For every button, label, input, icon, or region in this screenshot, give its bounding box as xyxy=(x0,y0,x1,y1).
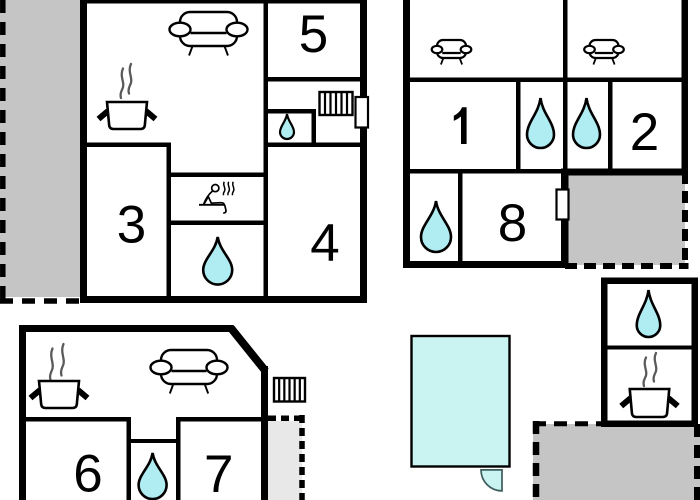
svg-text:2: 2 xyxy=(630,103,659,162)
svg-text:8: 8 xyxy=(498,194,527,253)
svg-text:4: 4 xyxy=(310,214,339,273)
svg-text:6: 6 xyxy=(73,445,102,500)
svg-text:7: 7 xyxy=(204,445,233,500)
svg-text:5: 5 xyxy=(299,5,328,64)
svg-text:3: 3 xyxy=(117,196,146,255)
